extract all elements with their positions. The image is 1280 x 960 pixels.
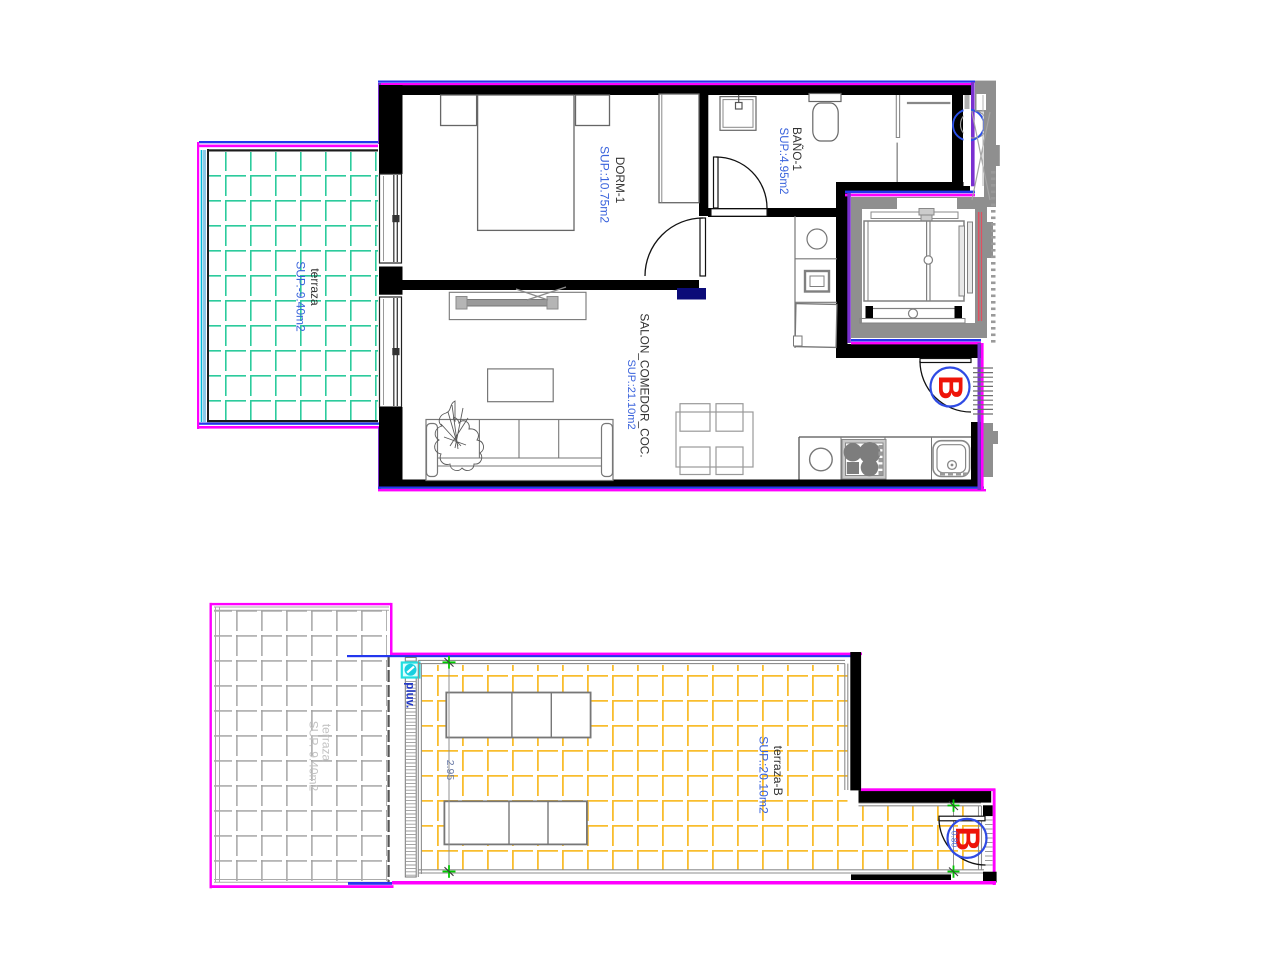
svg-text:0.80: 0.80 [950, 831, 960, 848]
svg-text:terraza: terraza [308, 268, 322, 306]
svg-text:terraza: terraza [320, 724, 334, 762]
svg-text:SUP.-9.40m2: SUP.-9.40m2 [307, 721, 321, 792]
svg-text:pluv.: pluv. [403, 682, 415, 708]
svg-text:SUP.:21.10m2: SUP.:21.10m2 [625, 359, 637, 429]
svg-text:2.95: 2.95 [444, 760, 456, 781]
svg-text:SALON_COMEDOR_COC.: SALON_COMEDOR_COC. [638, 313, 652, 457]
svg-text:SUP.:10.75m2: SUP.:10.75m2 [598, 146, 612, 223]
svg-text:DORM-1: DORM-1 [613, 157, 627, 204]
svg-text:terraza-B: terraza-B [771, 746, 785, 796]
svg-text:SUP.:4.95m2: SUP.:4.95m2 [777, 128, 789, 195]
svg-text:SUP.:20.10m2: SUP.:20.10m2 [756, 736, 770, 814]
svg-text:BAÑO-1: BAÑO-1 [790, 127, 804, 171]
svg-text:SUP.-9.40m2: SUP.-9.40m2 [293, 261, 307, 332]
svg-text:B: B [931, 375, 969, 400]
